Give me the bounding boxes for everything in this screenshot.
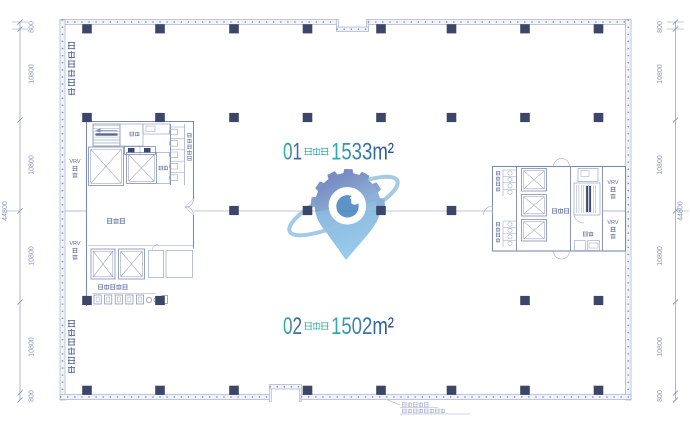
svg-text:44800: 44800: [678, 201, 685, 221]
svg-text:10800: 10800: [657, 64, 664, 84]
svg-text:VRV: VRV: [69, 241, 81, 247]
svg-text:10800: 10800: [657, 337, 664, 357]
svg-text:800: 800: [29, 21, 36, 33]
svg-text:10800: 10800: [29, 337, 36, 357]
svg-text:800: 800: [657, 390, 664, 402]
svg-text:VRV: VRV: [69, 159, 81, 165]
svg-text:VRV: VRV: [607, 220, 619, 226]
svg-text:01: 01: [283, 139, 302, 166]
svg-text:10800: 10800: [657, 155, 664, 175]
svg-text:44800: 44800: [2, 201, 9, 221]
svg-text:800: 800: [657, 21, 664, 33]
svg-text:10800: 10800: [29, 64, 36, 84]
svg-text:1533m²: 1533m²: [331, 139, 394, 166]
svg-text:10800: 10800: [29, 246, 36, 266]
svg-text:02: 02: [283, 313, 302, 340]
svg-text:VRV: VRV: [607, 180, 619, 186]
svg-text:1502m²: 1502m²: [331, 313, 394, 340]
svg-text:800: 800: [29, 390, 36, 402]
svg-text:10800: 10800: [657, 246, 664, 266]
svg-text:10800: 10800: [29, 155, 36, 175]
